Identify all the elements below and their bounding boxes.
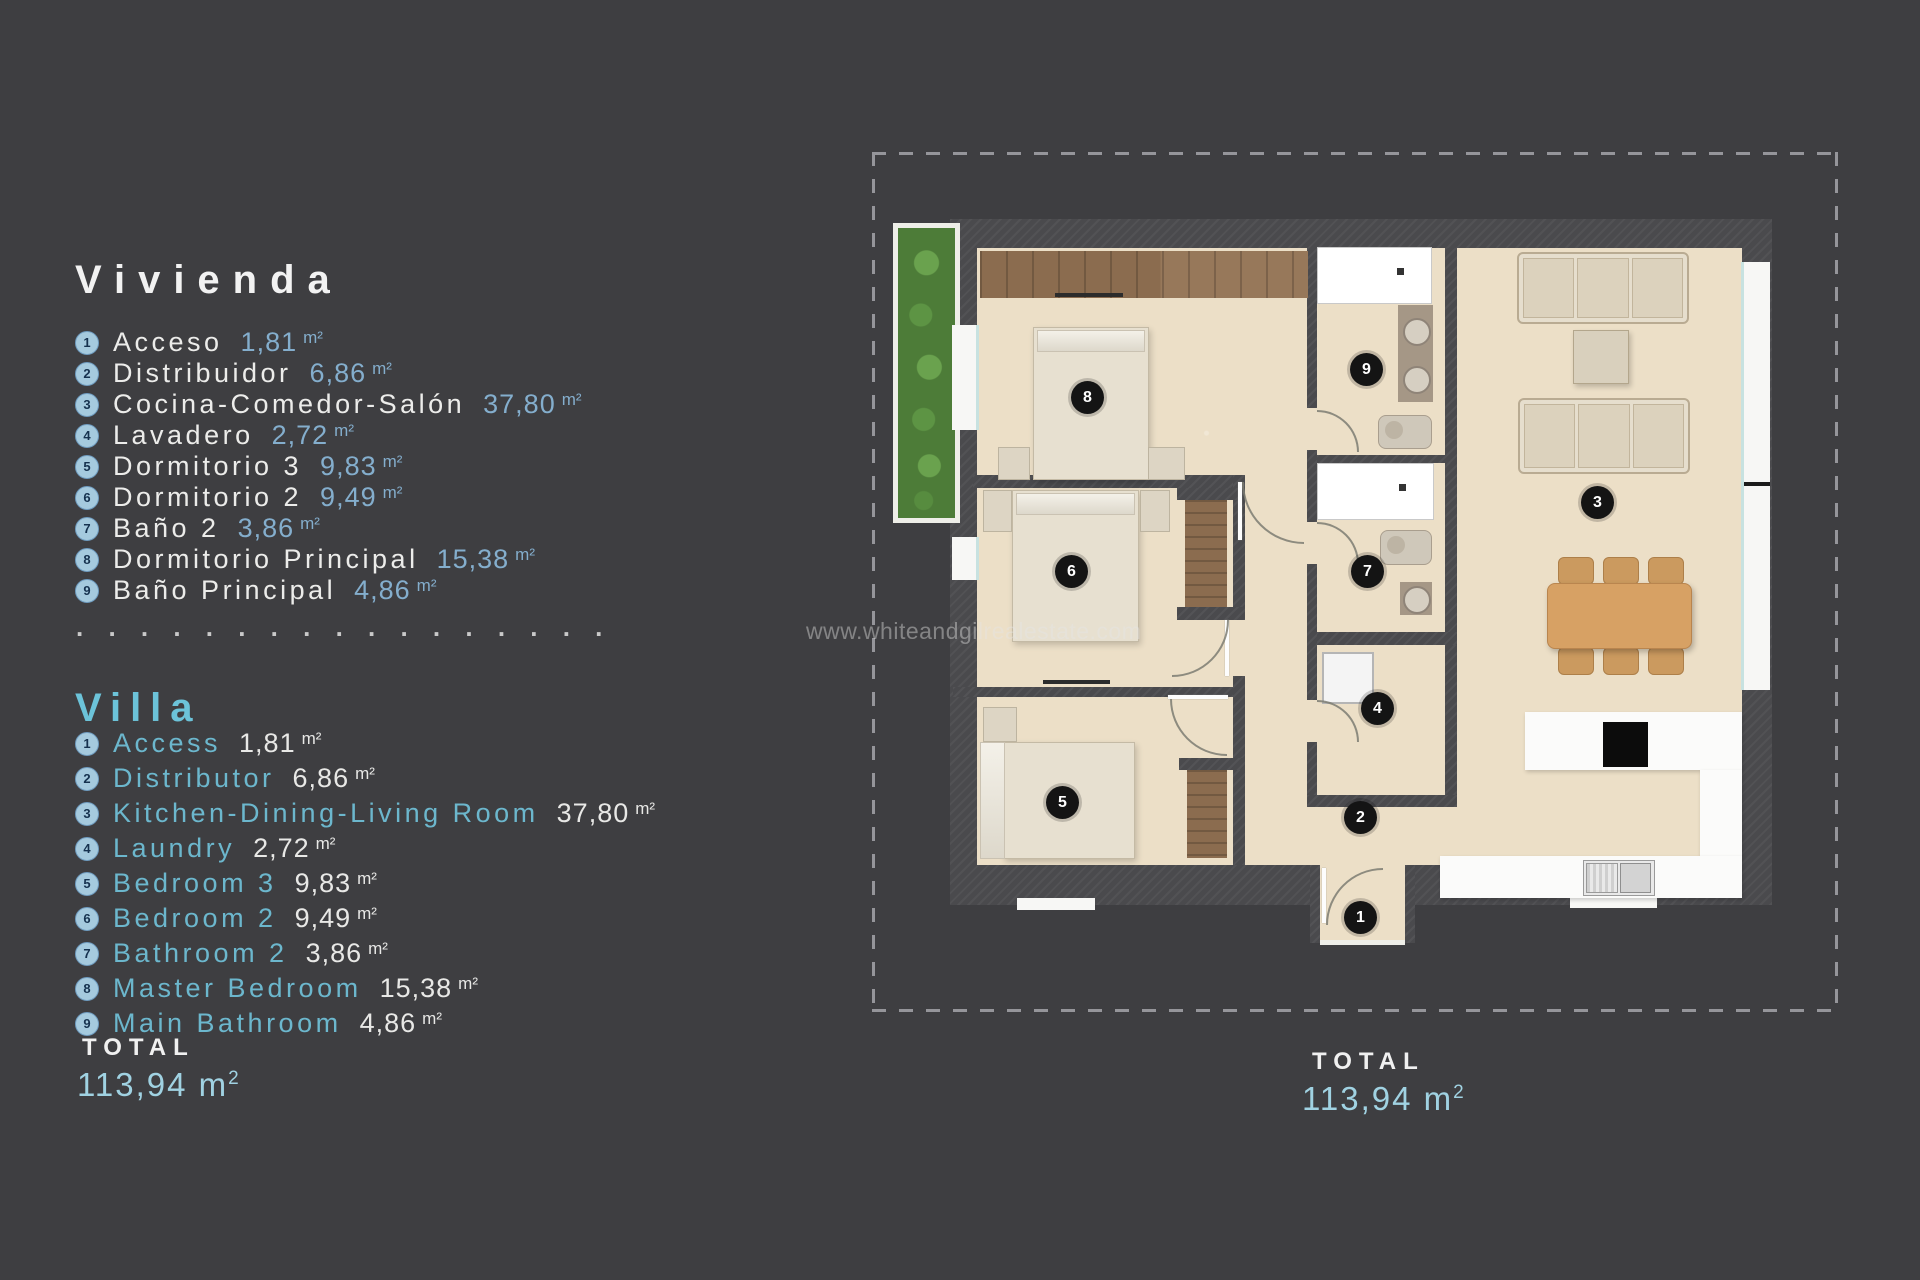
room-number-badge: 9	[75, 1012, 99, 1036]
legend-row: 3 Cocina-Comedor-Salón 37,80 m²	[75, 389, 582, 420]
shower-bath2	[1317, 463, 1434, 520]
legend-row: 8 Dormitorio Principal 15,38 m²	[75, 544, 582, 575]
wall-hall-right-1	[1307, 248, 1317, 408]
room-marker-number: 4	[1373, 700, 1382, 718]
room-marker-number: 1	[1356, 909, 1365, 927]
room-name: Bedroom 2	[113, 903, 277, 934]
room-number-badge: 2	[75, 362, 99, 386]
room-marker: 9	[1350, 353, 1383, 386]
room-marker: 4	[1361, 692, 1394, 725]
room-number-badge: 2	[75, 767, 99, 791]
total-label-left: TOTAL	[82, 1034, 195, 1062]
room-area-unit: m²	[334, 421, 354, 441]
dining-chair	[1648, 557, 1684, 585]
dining-chair	[1603, 647, 1639, 675]
legend-row: 9 Baño Principal 4,86 m²	[75, 575, 582, 606]
sofa-top	[1517, 252, 1689, 324]
legend-row: 1 Access 1,81 m²	[75, 726, 655, 761]
room-number-badge: 3	[75, 802, 99, 826]
dining-chair	[1648, 647, 1684, 675]
room-area: 4,86	[354, 575, 411, 606]
room-area: 3,86	[306, 938, 363, 969]
plot-boundary-left	[872, 152, 875, 1012]
room-number-badge: 8	[75, 548, 99, 572]
wall-bath9-bath7	[1317, 455, 1457, 463]
nightstand-master-left	[998, 447, 1030, 480]
window-right	[1744, 262, 1770, 690]
window-right-divider	[1744, 482, 1770, 486]
room-area: 2,72	[272, 420, 329, 451]
wall-hall-right-2	[1307, 450, 1317, 522]
wardrobe-master-bedroom	[980, 251, 1308, 298]
room-name: Lavadero	[113, 420, 254, 451]
room-name: Baño Principal	[113, 575, 336, 606]
room-name: Access	[113, 728, 221, 759]
plot-boundary-bottom	[872, 1009, 1838, 1012]
room-area-unit: m²	[355, 764, 375, 784]
total-value-left: 113,94 m2	[77, 1066, 241, 1104]
room-number-badge: 4	[75, 424, 99, 448]
nightstand-bedroom3	[983, 707, 1017, 742]
legend-row: 2 Distribuidor 6,86 m²	[75, 358, 582, 389]
room-marker-number: 2	[1356, 809, 1365, 827]
legend-row: 1 Acceso 1,81 m²	[75, 327, 582, 358]
window-left-2	[952, 537, 979, 580]
sink-main-bath-1	[1403, 318, 1431, 346]
wall-hall-right-4	[1307, 742, 1317, 795]
room-name: Baño 2	[113, 513, 220, 544]
sofa-cushion	[1524, 404, 1575, 468]
legend-list-en: 1 Access 1,81 m² 2 Distributor 6,86 m² 3…	[75, 726, 655, 1041]
room-name: Dormitorio 3	[113, 451, 302, 482]
sofa-cushion	[1523, 258, 1574, 318]
room-area: 6,86	[310, 358, 367, 389]
legend-row: 4 Lavadero 2,72 m²	[75, 420, 582, 451]
room-area: 9,83	[295, 868, 352, 899]
plot-boundary-top	[872, 152, 1838, 155]
nightstand-master-right	[1148, 447, 1185, 480]
sofa-cushion	[1578, 404, 1629, 468]
total-sup: 2	[1453, 1082, 1466, 1103]
total-value-right: 113,94 m2	[1302, 1080, 1466, 1118]
room-area: 2,72	[253, 833, 310, 864]
sink-bath2	[1403, 586, 1431, 614]
cooktop	[1603, 722, 1648, 767]
total-sup: 2	[228, 1068, 241, 1089]
entrance-step	[1320, 940, 1405, 945]
kitchen-sink-drainboard	[1586, 863, 1618, 893]
room-area-unit: m²	[300, 514, 320, 534]
wall-bath7-laundry	[1317, 632, 1457, 645]
entrance-wall-left	[1310, 865, 1320, 943]
room-marker: 8	[1071, 381, 1104, 414]
sofa-cushion	[1632, 258, 1683, 318]
room-number-badge: 3	[75, 393, 99, 417]
wall-hall-left-2	[1233, 676, 1245, 865]
window-bottom-1	[1017, 898, 1095, 910]
room-marker-number: 6	[1067, 563, 1076, 581]
room-area-unit: m²	[302, 729, 322, 749]
wardrobe-bedroom2	[1185, 500, 1227, 607]
wall-bath-living	[1445, 248, 1457, 800]
room-number-badge: 8	[75, 977, 99, 1001]
room-name: Distribuidor	[113, 358, 292, 389]
room-area: 15,38	[437, 544, 510, 575]
legend-list-es: 1 Acceso 1,81 m² 2 Distribuidor 6,86 m² …	[75, 327, 582, 606]
room-area-unit: m²	[422, 1009, 442, 1029]
legend-row: 7 Baño 2 3,86 m²	[75, 513, 582, 544]
total-label-right: TOTAL	[1312, 1048, 1425, 1076]
room-number-badge: 4	[75, 837, 99, 861]
room-marker: 2	[1344, 801, 1377, 834]
room-marker-number: 7	[1363, 563, 1372, 581]
dining-chair	[1558, 647, 1594, 675]
dotted-separator: . . . . . . . . . . . . . . . . .	[76, 612, 611, 643]
total-amount: 113,94 m	[77, 1066, 228, 1103]
room-area-unit: m²	[368, 939, 388, 959]
kitchen-sink-basin	[1620, 863, 1651, 893]
wardrobe6-frame-top	[1177, 488, 1245, 500]
dining-chair	[1603, 557, 1639, 585]
legend-row: 3 Kitchen-Dining-Living Room 37,80 m²	[75, 796, 655, 831]
sofa-bottom	[1518, 398, 1690, 474]
legend-row: 7 Bathroom 2 3,86 m²	[75, 936, 655, 971]
room-area: 15,38	[380, 973, 453, 1004]
room-marker-number: 8	[1083, 389, 1092, 407]
shower-main-bath	[1317, 247, 1432, 304]
room-name: Distributor	[113, 763, 275, 794]
room-area-unit: m²	[383, 483, 403, 503]
dining-table	[1547, 583, 1692, 649]
room-area: 37,80	[483, 389, 556, 420]
wardrobe6-frame-bottom	[1177, 607, 1245, 620]
coffee-table	[1573, 330, 1629, 384]
room-marker: 5	[1046, 786, 1079, 819]
nightstand-bedroom2-left	[983, 490, 1012, 532]
plot-boundary-right	[1835, 152, 1838, 1012]
room-number-badge: 1	[75, 732, 99, 756]
page: Vivienda 1 Acceso 1,81 m² 2 Distribuidor…	[0, 0, 1920, 1280]
room-number-badge: 7	[75, 517, 99, 541]
room-number-badge: 1	[75, 331, 99, 355]
room-marker: 3	[1581, 486, 1614, 519]
room-area: 37,80	[557, 798, 630, 829]
garden-planter	[893, 223, 960, 523]
sofa-cushion	[1633, 404, 1684, 468]
room-marker: 1	[1344, 901, 1377, 934]
room-area: 6,86	[293, 763, 350, 794]
wall-hall-right-3	[1307, 564, 1317, 700]
room-number-badge: 6	[75, 907, 99, 931]
room-name: Cocina-Comedor-Salón	[113, 389, 465, 420]
pillow-master	[1037, 330, 1145, 352]
room-number-badge: 5	[75, 872, 99, 896]
wardrobe5-frame-top	[1179, 758, 1245, 770]
legend-row: 6 Bedroom 2 9,49 m²	[75, 901, 655, 936]
room-number-badge: 6	[75, 486, 99, 510]
room-number-badge: 5	[75, 455, 99, 479]
room-area-unit: m²	[372, 359, 392, 379]
sofa-cushion	[1577, 258, 1628, 318]
watermark-text: www.whiteandgilrealestate.com	[806, 618, 1141, 645]
shelf-line-bed8	[1055, 293, 1123, 297]
room-marker: 7	[1351, 555, 1384, 588]
room-area-unit: m²	[635, 799, 655, 819]
room-name: Laundry	[113, 833, 235, 864]
shelf-line-bed6	[1043, 680, 1110, 684]
floor-plan: 1 2 3 4 5 6	[872, 152, 1838, 1012]
legend-row: 4 Laundry 2,72 m²	[75, 831, 655, 866]
door-leaf-entrance	[1322, 868, 1326, 923]
room-area-unit: m²	[357, 904, 377, 924]
room-area: 1,81	[239, 728, 296, 759]
entrance-wall-right	[1405, 865, 1415, 943]
pillow-bedroom3	[980, 742, 1005, 859]
nightstand-bedroom2-right	[1140, 490, 1170, 532]
room-area: 3,86	[238, 513, 295, 544]
pillow-bedroom2	[1016, 493, 1135, 515]
shower-drain-bath2	[1399, 484, 1406, 491]
sink-main-bath-2	[1403, 366, 1431, 394]
legend-row: 5 Dormitorio 3 9,83 m²	[75, 451, 582, 482]
total-amount: 113,94 m	[1302, 1080, 1453, 1117]
room-name: Dormitorio Principal	[113, 544, 419, 575]
room-marker-number: 5	[1058, 794, 1067, 812]
room-area: 9,49	[320, 482, 377, 513]
legend-title-es: Vivienda	[75, 258, 343, 303]
door-leaf-bed8	[1238, 482, 1242, 540]
kitchen-counter-right	[1700, 770, 1742, 856]
legend-row: 5 Bedroom 3 9,83 m²	[75, 866, 655, 901]
room-name: Bathroom 2	[113, 938, 288, 969]
wardrobe-bedroom3	[1187, 770, 1227, 858]
room-area-unit: m²	[562, 390, 582, 410]
window-left-1	[952, 325, 979, 430]
room-area-unit: m²	[417, 576, 437, 596]
room-marker-number: 9	[1362, 361, 1371, 379]
legend-row: 6 Dormitorio 2 9,49 m²	[75, 482, 582, 513]
room-area: 4,86	[360, 1008, 417, 1039]
room-area: 1,81	[241, 327, 298, 358]
room-name: Acceso	[113, 327, 223, 358]
room-area-unit: m²	[303, 328, 323, 348]
room-marker-number: 3	[1593, 494, 1602, 512]
room-name: Dormitorio 2	[113, 482, 302, 513]
room-area-unit: m²	[357, 869, 377, 889]
room-marker: 6	[1055, 555, 1088, 588]
room-name: Master Bedroom	[113, 973, 362, 1004]
legend-row: 8 Master Bedroom 15,38 m²	[75, 971, 655, 1006]
legend-title-en: Villa	[75, 686, 202, 731]
legend-row: 2 Distributor 6,86 m²	[75, 761, 655, 796]
room-area-unit: m²	[458, 974, 478, 994]
room-area: 9,83	[320, 451, 377, 482]
room-area: 9,49	[295, 903, 352, 934]
room-number-badge: 7	[75, 942, 99, 966]
room-area-unit: m²	[383, 452, 403, 472]
room-name: Bedroom 3	[113, 868, 277, 899]
dining-chair	[1558, 557, 1594, 585]
room-number-badge: 9	[75, 579, 99, 603]
shower-drain-main	[1397, 268, 1404, 275]
room-name: Kitchen-Dining-Living Room	[113, 798, 539, 829]
toilet-main-bath	[1378, 415, 1432, 449]
window-right-glass	[1741, 262, 1744, 690]
wall-laundry-distributor	[1307, 795, 1457, 807]
room-area-unit: m²	[316, 834, 336, 854]
toilet-bath2	[1380, 530, 1432, 565]
room-area-unit: m²	[515, 545, 535, 565]
